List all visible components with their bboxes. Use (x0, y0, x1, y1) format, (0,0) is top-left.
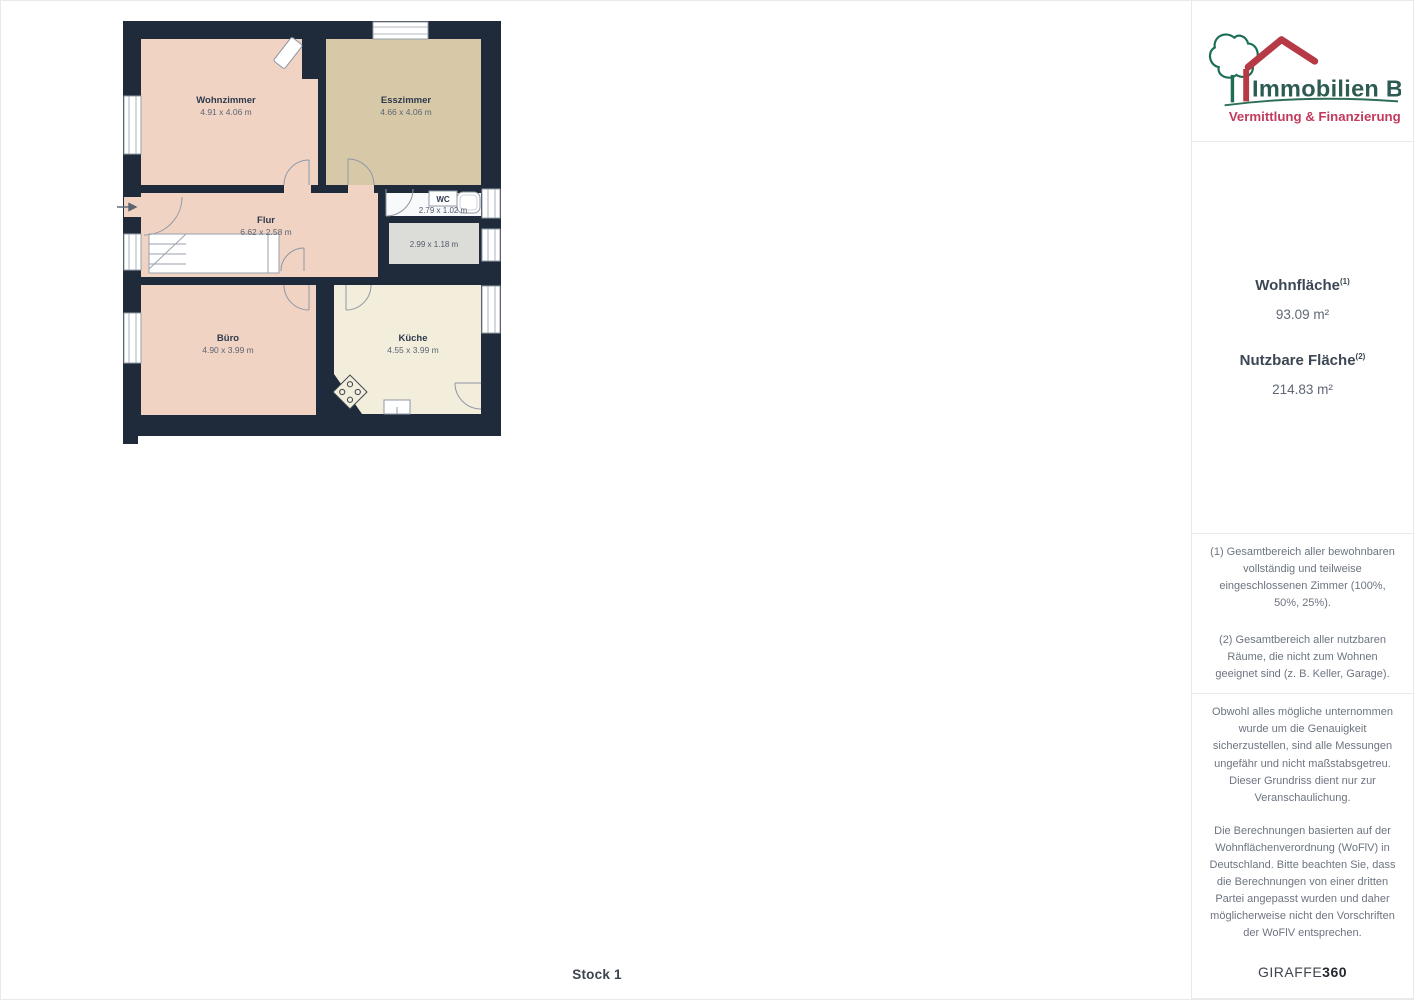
entrance (117, 197, 141, 217)
dims-buero: 4.90 x 3.99 m (202, 345, 254, 355)
nutzflaeche-block: Nutzbare Fläche(2) 214.83 m² (1240, 352, 1366, 397)
disclaimer-paragraph-1: Obwohl alles mögliche unternommen wurde … (1206, 704, 1399, 806)
window-left-3 (124, 313, 141, 363)
floorplan-drawing: Wohnzimmer 4.91 x 4.06 m Esszimmer 4.66 … (116, 13, 506, 445)
wohnflaeche-value: 93.09 m² (1255, 307, 1350, 322)
footnotes-section: (1) Gesamtbereich aller bewohnbaren voll… (1192, 534, 1413, 694)
dims-wc: 2.79 x 1.02 m (419, 206, 468, 215)
disclaimer-section: Obwohl alles mögliche unternommen wurde … (1192, 694, 1413, 999)
label-kueche: Küche (398, 333, 427, 344)
logo-title: Immobilien Bart (1252, 75, 1401, 101)
floor-label: Stock 1 (1, 967, 1193, 982)
window-left-2 (124, 234, 141, 270)
window-right-2 (482, 229, 500, 261)
label-wohnzimmer: Wohnzimmer (196, 95, 256, 106)
logo-underline (1224, 99, 1397, 106)
brand-name: GIRAFFE (1258, 964, 1322, 980)
floorplan-canvas: Wohnzimmer 4.91 x 4.06 m Esszimmer 4.66 … (1, 1, 1193, 999)
window-right-1 (482, 189, 500, 218)
logo-section: Immobilien Bart Vermittlung & Finanzieru… (1192, 1, 1413, 142)
giraffe360-logo: GIRAFFE360 (1206, 964, 1399, 980)
disclaimer-paragraph-2: Die Berechnungen basierten auf der Wohnf… (1206, 823, 1399, 942)
areas-section: Wohnfläche(1) 93.09 m² Nutzbare Fläche(2… (1192, 142, 1413, 534)
brand-suffix: 360 (1322, 964, 1347, 980)
dims-wohnzimmer: 4.91 x 4.06 m (200, 107, 252, 117)
dims-flur: 6.62 x 2.58 m (240, 227, 292, 237)
footnote-2: (2) Gesamtbereich aller nutzbaren Räume,… (1206, 632, 1399, 683)
page: Wohnzimmer 4.91 x 4.06 m Esszimmer 4.66 … (0, 0, 1414, 1000)
footnote-ref-2: (2) (1356, 352, 1366, 361)
footnote-ref-1: (1) (1340, 277, 1350, 286)
logo-subtitle: Vermittlung & Finanzierung (1228, 109, 1400, 124)
window-right-3 (482, 286, 500, 333)
dims-kueche: 4.55 x 3.99 m (387, 345, 439, 355)
wohnflaeche-block: Wohnfläche(1) 93.09 m² (1255, 277, 1350, 322)
label-flur: Flur (257, 215, 275, 226)
dims-abstellraum: 2.99 x 1.18 m (410, 240, 459, 249)
sidebar: Immobilien Bart Vermittlung & Finanzieru… (1191, 1, 1413, 999)
label-wc: WC (436, 195, 450, 204)
stairs (149, 234, 279, 273)
window-left-1 (124, 96, 141, 154)
nutzflaeche-value: 214.83 m² (1240, 382, 1366, 397)
nutzflaeche-label: Nutzbare Fläche(2) (1240, 352, 1366, 369)
company-logo: Immobilien Bart Vermittlung & Finanzieru… (1205, 15, 1401, 127)
footnote-1: (1) Gesamtbereich aller bewohnbaren voll… (1206, 544, 1399, 612)
dims-esszimmer: 4.66 x 4.06 m (380, 107, 432, 117)
wohnflaeche-label: Wohnfläche(1) (1255, 277, 1350, 294)
wall-notch (302, 39, 318, 79)
sink-icon (384, 400, 410, 414)
label-esszimmer: Esszimmer (381, 95, 431, 106)
label-buero: Büro (217, 333, 239, 344)
window-top-1 (373, 22, 428, 39)
